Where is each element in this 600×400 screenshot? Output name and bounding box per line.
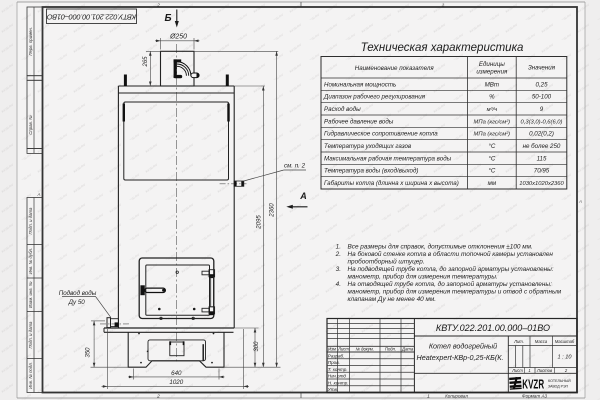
svg-text:Лит.: Лит.: [513, 339, 524, 344]
svg-text:не более 250: не более 250: [523, 143, 561, 150]
svg-text:МПа (кгс/см²): МПа (кгс/см²): [474, 132, 511, 138]
svg-text:0,25: 0,25: [535, 81, 548, 88]
svg-text:Утв.: Утв.: [328, 387, 338, 392]
svg-text:Техническая характеристика: Техническая характеристика: [361, 42, 524, 54]
svg-text:Копировал: Копировал: [445, 393, 468, 398]
svg-text:1 : 10: 1 : 10: [558, 355, 573, 361]
svg-text:На боковой стенке котла в обла: На боковой стенке котла в области топочн…: [348, 250, 554, 258]
svg-text:Инв. № подл.: Инв. № подл.: [28, 362, 33, 389]
svg-text:Инв. № дубл.: Инв. № дубл.: [28, 248, 33, 274]
svg-text:МВт: МВт: [485, 81, 499, 88]
svg-text:Изм: Изм: [328, 347, 336, 352]
svg-text:300: 300: [254, 341, 260, 352]
svg-text:Масштаб: Масштаб: [555, 339, 575, 344]
svg-text:2095: 2095: [256, 215, 262, 230]
svg-text:Б: Б: [164, 13, 171, 24]
svg-text:Наименование показателя: Наименование показателя: [355, 65, 435, 72]
svg-text:%: %: [489, 94, 495, 101]
svg-text:Н. контр.: Н. контр.: [328, 380, 349, 385]
svg-text:см. п. 2: см. п. 2: [284, 163, 306, 170]
svg-text:°С: °С: [488, 143, 495, 150]
svg-text:Справ. №: Справ. №: [28, 115, 33, 135]
svg-text:Подп. и дата: Подп. и дата: [28, 321, 33, 349]
svg-text:мм: мм: [488, 180, 497, 187]
svg-text:1030х1020х2360: 1030х1020х2360: [519, 181, 564, 187]
svg-text:640: 640: [171, 370, 182, 377]
svg-text:265: 265: [143, 56, 149, 68]
svg-text:Подп.: Подп.: [385, 347, 396, 352]
svg-text:Максимальная рабочая температу: Максимальная рабочая температура воды: [324, 155, 452, 162]
svg-text:Котел водогрейный: Котел водогрейный: [429, 341, 497, 350]
svg-text:измерения: измерения: [476, 68, 508, 75]
svg-text:манометр, прибор для измерения: манометр, прибор для измерения температу…: [348, 287, 562, 295]
svg-text:350: 350: [86, 347, 92, 358]
svg-text:Подп. и дата: Подп. и дата: [28, 207, 33, 235]
svg-text:KVZR: KVZR: [522, 377, 544, 392]
svg-text:Все размеры для справок, допус: Все размеры для справок, допустимые откл…: [348, 243, 533, 251]
svg-text:ЗАВОД РЭП: ЗАВОД РЭП: [548, 384, 568, 389]
svg-text:Масса: Масса: [535, 339, 548, 344]
svg-text:Гидравлическое сопротивление к: Гидравлическое сопротивление котла: [324, 131, 438, 138]
svg-text:Ду 50: Ду 50: [68, 299, 86, 306]
svg-text:клапанам Ду не менее 40 мм.: клапанам Ду не менее 40 мм.: [348, 296, 437, 303]
svg-text:пробоотборный штуцер.: пробоотборный штуцер.: [348, 258, 425, 266]
svg-text:2360: 2360: [270, 203, 276, 218]
svg-text:1020: 1020: [169, 379, 183, 386]
svg-text:№ докум.: № докум.: [355, 347, 373, 352]
svg-text:1: 1: [427, 393, 430, 399]
svg-text:КОТЕЛЬНЫЙ: КОТЕЛЬНЫЙ: [548, 378, 571, 383]
svg-text:°С: °С: [488, 168, 495, 175]
svg-text:Единицы: Единицы: [479, 61, 505, 68]
svg-text:Взам. инв. №: Взам. инв. №: [28, 281, 33, 308]
svg-text:Температура уходящих газов: Температура уходящих газов: [324, 143, 412, 150]
svg-text:Листов: Листов: [536, 368, 553, 373]
svg-text:Дата: Дата: [401, 347, 414, 352]
svg-text:Лист: Лист: [337, 347, 349, 352]
svg-text:м³/ч: м³/ч: [487, 107, 498, 113]
svg-text:Формат А3: Формат А3: [522, 393, 548, 398]
svg-text:Габариты котла (длинна х ширин: Габариты котла (длинна х ширина х высота…: [324, 180, 459, 187]
svg-text:КВТУ.022.201.00.000–01ВО: КВТУ.022.201.00.000–01ВО: [47, 13, 136, 22]
svg-text:0,3(3,0)-0,6(6,0): 0,3(3,0)-0,6(6,0): [521, 119, 563, 125]
svg-text:Температура воды (вход/выход): Температура воды (вход/выход): [324, 168, 418, 175]
svg-text:50-100: 50-100: [532, 94, 552, 101]
svg-text:1: 1: [528, 368, 530, 373]
svg-text:Диапазон рабочего регулировани: Диапазон рабочего регулирования: [323, 94, 426, 101]
svg-text:4.: 4.: [336, 281, 341, 288]
svg-text:Разраб.: Разраб.: [328, 353, 345, 358]
svg-text:1.: 1.: [336, 244, 341, 251]
svg-text:Расход воды: Расход воды: [324, 106, 361, 113]
svg-text:А: А: [578, 199, 582, 204]
svg-text:Пров.: Пров.: [328, 360, 340, 365]
svg-text:манометр, прибор для измерения: манометр, прибор для измерения температу…: [348, 272, 498, 280]
svg-text:2.: 2.: [335, 251, 341, 258]
svg-text:Heatexpert-КВр-0,25-КБ(К.: Heatexpert-КВр-0,25-КБ(К.: [417, 353, 504, 362]
svg-text:Перв. примен.: Перв. примен.: [28, 27, 33, 56]
svg-text:3.: 3.: [336, 266, 341, 273]
svg-text:Значения: Значения: [528, 65, 556, 72]
svg-text:2: 2: [156, 393, 160, 399]
svg-text:КВТУ.022.201.00.000–01ВО: КВТУ.022.201.00.000–01ВО: [436, 323, 550, 333]
svg-text:На отводящей трубе котла, до з: На отводящей трубе котла, до запорной ар…: [348, 280, 553, 288]
svg-text:А: А: [299, 191, 307, 201]
svg-text:9: 9: [540, 106, 544, 113]
svg-text:Номинальная мощность: Номинальная мощность: [324, 81, 396, 88]
svg-text:Нач.отд: Нач.отд: [328, 374, 347, 379]
svg-text:Подвод воды: Подвод воды: [59, 290, 97, 297]
svg-text:70/95: 70/95: [534, 168, 550, 175]
svg-text:115: 115: [537, 155, 547, 162]
svg-text:Т. контр.: Т. контр.: [328, 367, 348, 372]
svg-text:Ø250: Ø250: [169, 34, 187, 41]
svg-text:На подводящей трубе котла, до: На подводящей трубе котла, до запорной а…: [348, 265, 554, 273]
svg-text:0,02(0,2): 0,02(0,2): [529, 131, 554, 138]
svg-text:А: А: [36, 192, 40, 197]
svg-text:°С: °С: [488, 155, 495, 162]
svg-text:Рабочее давление воды: Рабочее давление воды: [324, 118, 394, 125]
svg-text:Лист: Лист: [511, 368, 523, 373]
svg-text:МПа (кгс/см²): МПа (кгс/см²): [474, 119, 511, 125]
